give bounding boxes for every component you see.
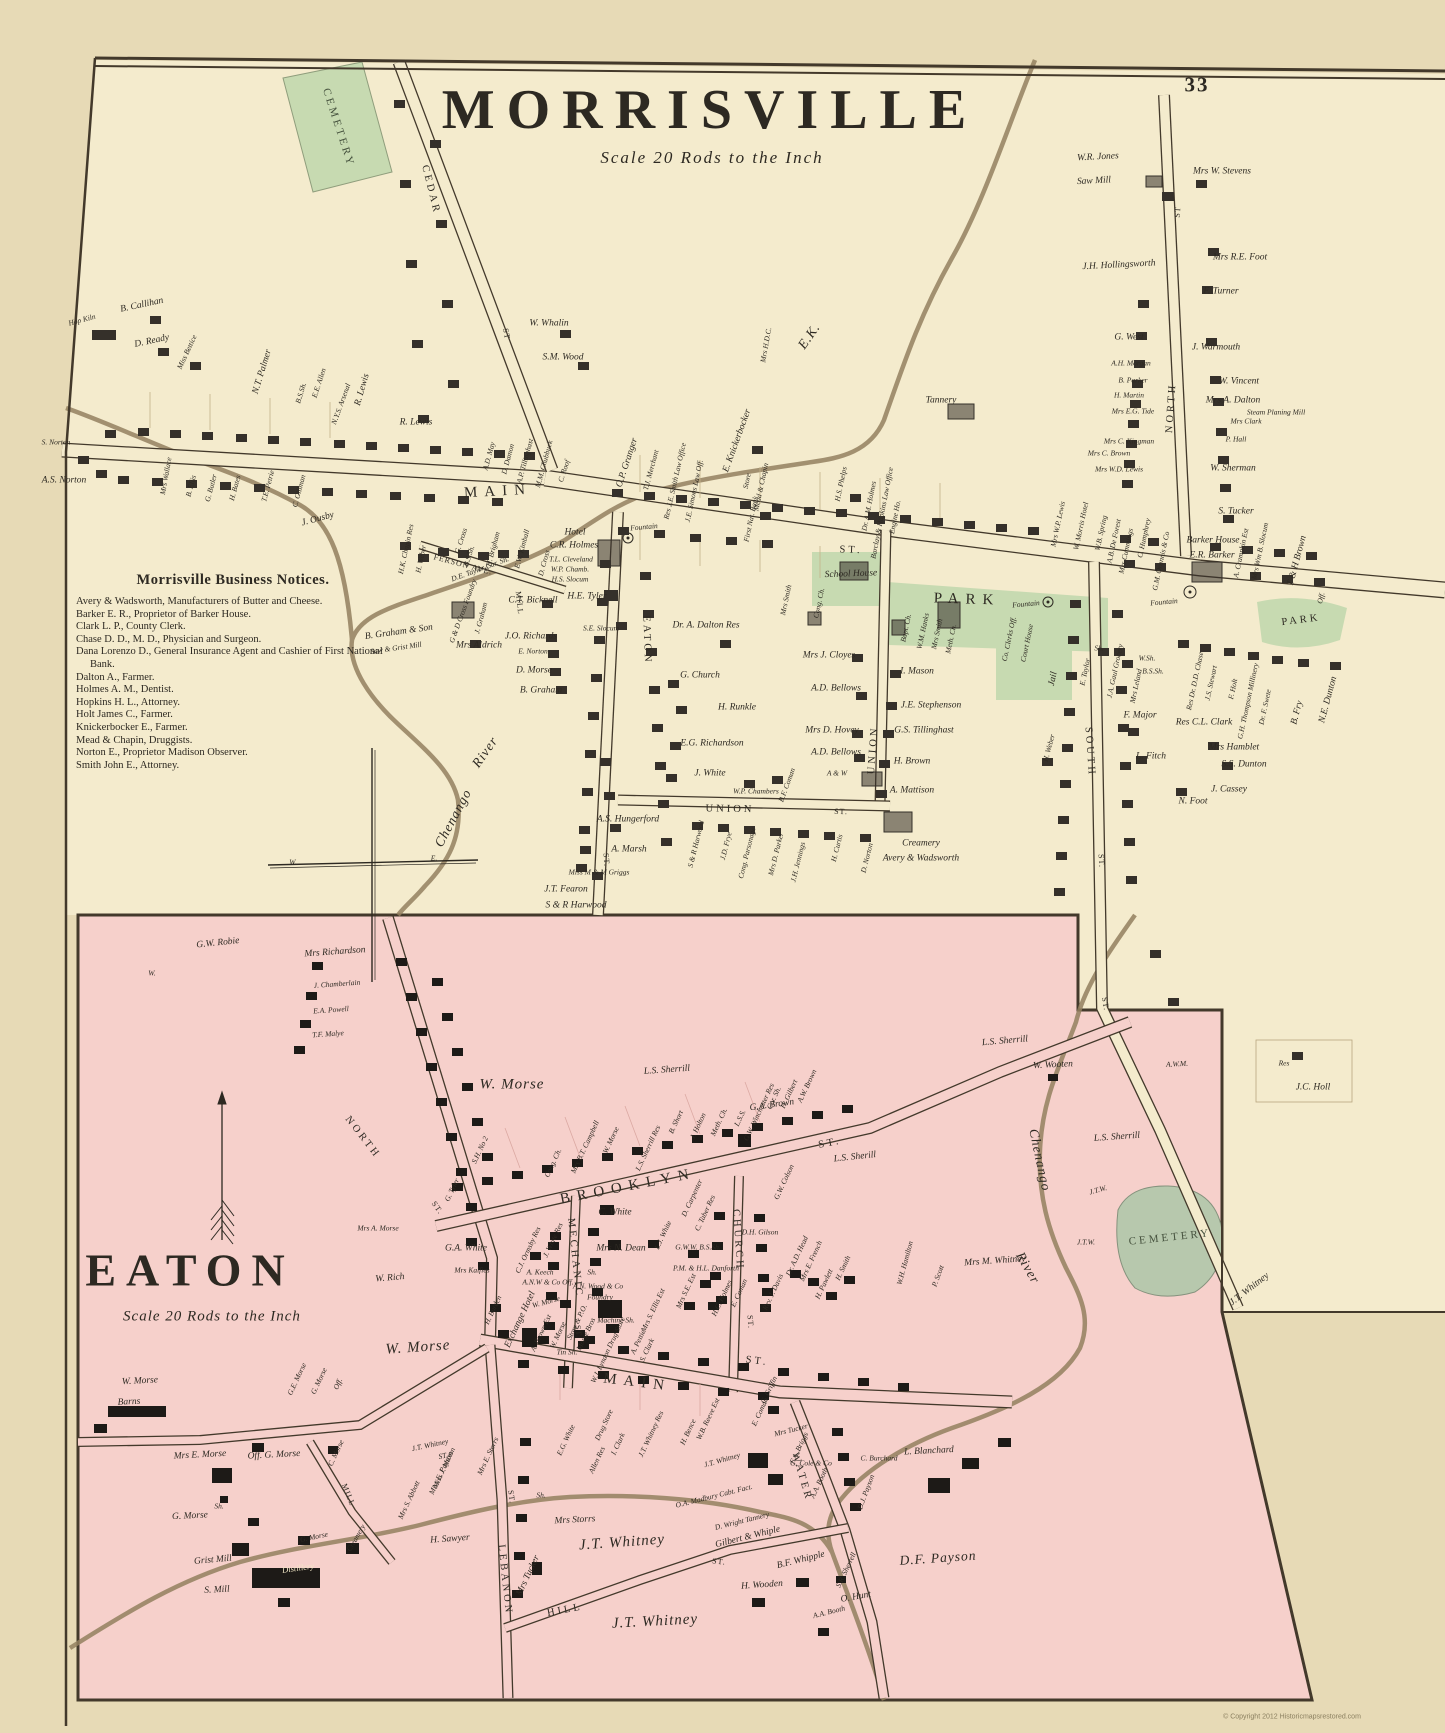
building: [726, 537, 737, 545]
building: [580, 846, 591, 854]
building: [436, 1098, 447, 1106]
building: [1062, 744, 1073, 752]
building: [576, 864, 587, 872]
building: [852, 654, 863, 662]
building: [842, 1105, 853, 1113]
building: [804, 507, 815, 515]
building: [722, 1129, 733, 1137]
building: [1058, 816, 1069, 824]
business-notice-entry: Holmes A. M., Dentist.: [76, 684, 390, 697]
building: [1282, 575, 1293, 583]
building: [356, 490, 367, 498]
building: [94, 1424, 107, 1433]
building: [298, 1536, 310, 1545]
building: [105, 430, 116, 438]
building: [600, 758, 611, 766]
building: [858, 1378, 869, 1386]
building: [1122, 800, 1133, 808]
building: [632, 1147, 643, 1155]
building: [578, 362, 589, 370]
building: [306, 992, 317, 1000]
building: [430, 140, 441, 148]
building: [542, 600, 553, 608]
building: [212, 1468, 232, 1483]
building: [708, 498, 719, 506]
business-notices-list: Avery & Wadsworth, Manufacturers of Butt…: [76, 596, 390, 772]
building: [654, 530, 665, 538]
building: [394, 100, 405, 108]
building: [720, 640, 731, 648]
building: [666, 774, 677, 782]
building: [1114, 648, 1125, 656]
building: [334, 440, 345, 448]
building: [860, 834, 871, 842]
building: [322, 488, 333, 496]
building: [1162, 192, 1174, 201]
building: [398, 444, 409, 452]
building: [490, 1304, 501, 1312]
building: [1202, 286, 1213, 294]
building: [770, 828, 781, 836]
building: [152, 478, 163, 486]
building: [516, 1514, 527, 1522]
building: [466, 1238, 477, 1246]
building: [850, 1503, 861, 1511]
building: [948, 404, 974, 419]
building: [548, 1242, 559, 1250]
building: [1196, 180, 1207, 188]
building: [548, 650, 559, 658]
building: [762, 1288, 773, 1296]
building: [768, 1474, 783, 1485]
building: [585, 750, 596, 758]
building: [1042, 758, 1053, 766]
building: [898, 1383, 909, 1391]
building: [548, 1262, 559, 1270]
building: [798, 830, 809, 838]
building: [254, 484, 265, 492]
building: [1208, 248, 1219, 256]
business-notice-entry: Dana Lorenzo D., General Insurance Agent…: [76, 646, 390, 671]
building: [1242, 546, 1253, 554]
building: [558, 1366, 569, 1374]
building: [406, 260, 417, 268]
building: [758, 1392, 769, 1400]
building: [649, 686, 660, 694]
courthouse-green: [996, 608, 1072, 700]
building: [472, 1118, 483, 1126]
building: [248, 1518, 259, 1526]
building: [648, 1240, 659, 1248]
building: [1306, 552, 1317, 560]
building: [782, 1117, 793, 1125]
building: [838, 1453, 849, 1461]
building: [542, 1165, 553, 1173]
building: [426, 1063, 437, 1071]
building: [1054, 888, 1065, 896]
building: [438, 548, 449, 556]
building: [744, 780, 755, 788]
building: [752, 446, 763, 454]
building: [1066, 672, 1077, 680]
building: [588, 1228, 599, 1236]
building: [644, 492, 655, 500]
building: [390, 492, 401, 500]
building: [1124, 838, 1135, 846]
building: [678, 1382, 689, 1390]
building: [962, 1458, 979, 1469]
building: [890, 670, 901, 678]
building: [412, 340, 423, 348]
building: [436, 220, 447, 228]
building: [658, 800, 669, 808]
building: [824, 832, 835, 840]
building: [442, 1013, 453, 1021]
building: [744, 826, 755, 834]
building: [1218, 456, 1229, 464]
building: [278, 1598, 290, 1607]
building: [662, 1141, 673, 1149]
building: [1128, 420, 1139, 428]
building: [1272, 656, 1283, 664]
building: [768, 1406, 779, 1414]
building: [574, 1330, 585, 1338]
building: [268, 436, 279, 444]
building: [883, 730, 894, 738]
building: [478, 1262, 489, 1270]
building: [584, 1336, 595, 1344]
building: [446, 1133, 457, 1141]
building: [752, 1598, 765, 1607]
building: [462, 1083, 473, 1091]
building: [482, 1153, 493, 1161]
building: [840, 562, 868, 580]
building: [684, 1302, 695, 1310]
building: [556, 686, 567, 694]
building: [1060, 780, 1071, 788]
building: [494, 450, 505, 458]
building: [854, 754, 865, 762]
building: [522, 1328, 537, 1347]
building: [676, 495, 687, 503]
building: [852, 730, 863, 738]
building: [592, 872, 603, 880]
building: [456, 1168, 467, 1176]
building: [1132, 380, 1143, 388]
building: [748, 1453, 768, 1468]
building: [1210, 543, 1221, 551]
building: [1136, 332, 1147, 340]
building: [591, 674, 602, 682]
building: [1112, 610, 1123, 618]
building: [602, 1153, 613, 1161]
building: [998, 1438, 1011, 1447]
building: [96, 470, 107, 478]
building: [560, 1300, 571, 1308]
building: [452, 602, 474, 618]
building: [579, 826, 590, 834]
business-notice-entry: Chase D. D., M. D., Physician and Surgeo…: [76, 634, 390, 647]
building: [458, 550, 469, 558]
building: [418, 554, 429, 562]
building: [170, 430, 181, 438]
building: [190, 362, 201, 370]
building: [232, 1543, 249, 1556]
building: [482, 1177, 493, 1185]
building: [424, 494, 435, 502]
building: [760, 1304, 771, 1312]
building: [900, 515, 911, 523]
building: [756, 1244, 767, 1252]
building: [618, 1346, 629, 1354]
building: [718, 824, 729, 832]
building: [1213, 398, 1224, 406]
building: [964, 521, 975, 529]
building: [932, 518, 943, 526]
building: [396, 958, 407, 966]
building: [478, 552, 489, 560]
business-notice-entry: Hopkins H. L., Attorney.: [76, 697, 390, 710]
building: [604, 590, 618, 601]
building: [452, 1183, 463, 1191]
building: [544, 1322, 555, 1330]
building: [416, 1028, 427, 1036]
building: [252, 1443, 264, 1452]
building: [92, 330, 116, 340]
building: [772, 776, 783, 784]
building: [710, 1272, 721, 1280]
building: [796, 1578, 809, 1587]
building: [594, 636, 605, 644]
building: [288, 486, 299, 494]
building: [520, 1438, 531, 1446]
business-notice-entry: Dalton A., Farmer.: [76, 672, 390, 685]
building: [612, 489, 623, 497]
building: [1124, 560, 1135, 568]
building: [252, 1568, 320, 1588]
building: [366, 442, 377, 450]
building: [1056, 852, 1067, 860]
business-notice-entry: Avery & Wadsworth, Manufacturers of Butt…: [76, 596, 390, 609]
building: [158, 348, 169, 356]
building: [546, 634, 557, 642]
building: [1330, 662, 1341, 670]
building: [856, 692, 867, 700]
business-notice-entry: Clark L. P., County Clerk.: [76, 621, 390, 634]
building: [462, 448, 473, 456]
building: [1200, 644, 1211, 652]
business-notices: Morrisville Business Notices. Avery & Wa…: [76, 572, 390, 772]
building: [518, 550, 529, 558]
building: [236, 434, 247, 442]
building: [700, 1280, 711, 1288]
building: [778, 1368, 789, 1376]
building: [1314, 578, 1325, 586]
building: [808, 1278, 819, 1286]
building: [300, 1020, 311, 1028]
building: [1122, 660, 1133, 668]
building: [618, 527, 629, 535]
business-notice-entry: Mead & Chapin, Druggists.: [76, 735, 390, 748]
building: [692, 822, 703, 830]
building: [1068, 636, 1079, 644]
building: [758, 1274, 769, 1282]
building: [532, 1562, 542, 1575]
building: [692, 1135, 703, 1143]
building: [1116, 686, 1127, 694]
building: [600, 560, 611, 568]
building: [466, 1203, 477, 1211]
building: [608, 1240, 621, 1250]
building: [836, 509, 847, 517]
business-notice-entry: Smith John E., Attorney.: [76, 760, 390, 773]
building: [1192, 562, 1222, 582]
building: [600, 1205, 614, 1215]
building: [1224, 648, 1235, 656]
building: [1134, 360, 1145, 368]
building: [1098, 648, 1109, 656]
building: [604, 792, 615, 800]
building: [670, 742, 681, 750]
building: [826, 1292, 837, 1300]
building: [452, 1048, 463, 1056]
business-notice-entry: Norton E., Proprietor Madison Observer.: [76, 747, 390, 760]
building: [546, 1292, 557, 1300]
building: [492, 498, 503, 506]
building: [498, 1330, 509, 1338]
building: [202, 432, 213, 440]
building: [442, 300, 453, 308]
building: [752, 1123, 763, 1131]
building: [643, 610, 654, 618]
building: [400, 542, 411, 550]
building: [1206, 338, 1217, 346]
building: [514, 1552, 525, 1560]
building: [118, 476, 129, 484]
building: [646, 648, 657, 656]
building: [1138, 300, 1149, 308]
building: [754, 1214, 765, 1222]
building: [832, 1428, 843, 1436]
building: [610, 824, 621, 832]
building: [808, 612, 821, 625]
building: [879, 760, 890, 768]
building: [590, 1258, 601, 1266]
building: [836, 1576, 846, 1583]
building: [1136, 756, 1147, 764]
business-notice-entry: Holt James C., Farmer.: [76, 709, 390, 722]
building: [738, 1134, 751, 1147]
map-graphics: [0, 0, 1445, 1733]
building: [712, 1242, 723, 1250]
building: [432, 978, 443, 986]
business-notice-entry: Knickerbocker E., Farmer.: [76, 722, 390, 735]
building: [524, 452, 535, 460]
building: [1274, 549, 1285, 557]
building: [616, 622, 627, 630]
building: [1222, 762, 1233, 770]
building: [772, 504, 783, 512]
building: [1122, 480, 1133, 488]
building: [518, 1476, 529, 1484]
building: [884, 812, 912, 832]
park-lobe-green: [1257, 598, 1347, 647]
building: [550, 668, 561, 676]
building: [512, 1171, 523, 1179]
building: [186, 480, 197, 488]
building: [1155, 563, 1166, 571]
building: [1210, 376, 1221, 384]
building: [582, 788, 593, 796]
building: [762, 540, 773, 548]
building: [1150, 950, 1161, 958]
building: [690, 534, 701, 542]
building: [400, 180, 411, 188]
building: [220, 1496, 228, 1503]
building: [1028, 527, 1039, 535]
atlas-sheet: Morrisville Business Notices. Avery & Wa…: [0, 0, 1445, 1733]
building: [1220, 484, 1231, 492]
building: [718, 1388, 729, 1396]
building: [1128, 728, 1139, 736]
building: [312, 962, 323, 970]
building: [1216, 428, 1227, 436]
building: [844, 1276, 855, 1284]
building: [328, 1446, 338, 1454]
building: [498, 550, 509, 558]
building: [661, 838, 672, 846]
building: [418, 415, 429, 423]
building: [716, 1296, 727, 1304]
building: [430, 446, 441, 454]
building: [1178, 640, 1189, 648]
building: [1064, 708, 1075, 716]
building: [518, 1360, 529, 1368]
building: [862, 772, 882, 786]
building: [740, 501, 751, 509]
building: [790, 1270, 801, 1278]
building: [1292, 1052, 1303, 1060]
building: [640, 572, 651, 580]
building: [850, 494, 861, 502]
building: [655, 762, 666, 770]
building: [470, 640, 481, 648]
building: [300, 438, 311, 446]
building: [886, 702, 897, 710]
building: [1250, 572, 1261, 580]
building: [812, 1111, 823, 1119]
building: [588, 712, 599, 720]
building: [1168, 998, 1179, 1006]
building: [698, 1358, 709, 1366]
building: [550, 1232, 561, 1240]
building: [598, 1300, 622, 1318]
building: [688, 1250, 699, 1258]
building: [606, 1324, 619, 1333]
building: [1126, 876, 1137, 884]
building: [928, 1478, 950, 1493]
building: [512, 1590, 523, 1598]
building: [996, 524, 1007, 532]
building: [598, 1371, 609, 1379]
building: [538, 1336, 549, 1344]
building: [1298, 659, 1309, 667]
building: [818, 1628, 829, 1636]
building: [1146, 176, 1162, 187]
building: [530, 1252, 541, 1260]
building: [220, 482, 231, 490]
building: [572, 1159, 583, 1167]
